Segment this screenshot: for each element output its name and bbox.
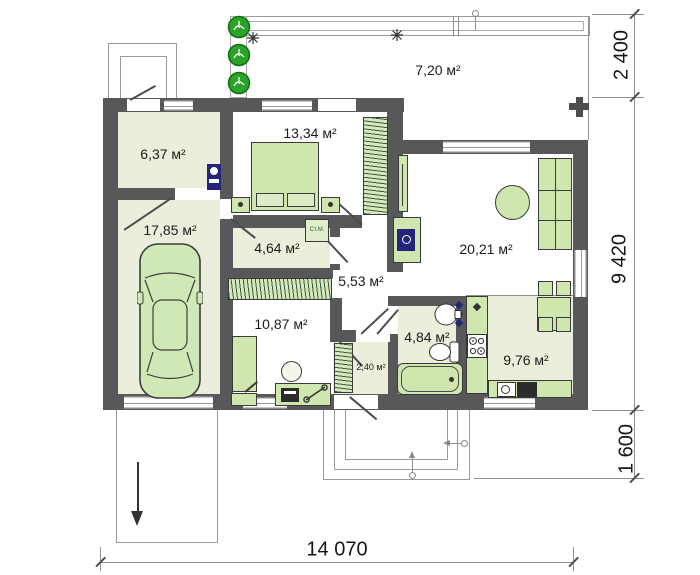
arrow-left-icon — [443, 440, 450, 446]
window — [262, 100, 312, 111]
pillow — [287, 193, 315, 207]
wall-segment — [228, 268, 333, 278]
coat-hook-icon — [303, 383, 329, 403]
room-label-garage: 17,85 м² — [143, 222, 196, 238]
door-opening — [318, 99, 356, 111]
room-label-kitchen: 9,76 м² — [503, 352, 548, 368]
dining-chair — [556, 317, 571, 332]
dim-porch-depth: 1 600 — [616, 424, 639, 474]
room-label-bathroom: 4,84 м² — [404, 329, 449, 345]
kitchen-sink-basin — [501, 385, 510, 394]
dim-extension — [592, 410, 644, 411]
wardrobe — [228, 278, 332, 300]
tree-icon — [227, 43, 251, 67]
room-label-closet: 2,40 м² — [356, 362, 385, 372]
driveway-arrow-line — [137, 462, 139, 512]
wall-segment — [117, 188, 175, 200]
level-marker-line — [412, 458, 413, 472]
arrow-up-icon — [409, 451, 415, 458]
back-porch-inner — [120, 56, 167, 100]
boiler-slot — [209, 179, 219, 183]
dim-extension — [474, 478, 644, 479]
dim-extension — [592, 14, 644, 15]
room-label-corridor: 4,64 м² — [254, 240, 299, 256]
window — [484, 397, 535, 409]
bathtub-drain-icon — [449, 377, 454, 382]
sofa-line — [555, 158, 556, 250]
bench-low — [231, 393, 257, 406]
level-marker-icon — [409, 472, 416, 479]
tree-icon — [227, 71, 251, 95]
pillow — [256, 193, 284, 207]
window — [574, 250, 587, 297]
room-label-hall: 5,53 м² — [338, 273, 383, 289]
wall-segment — [103, 98, 118, 410]
dim-house-depth: 9 420 — [609, 234, 632, 284]
floor-plan: Ст.М. — [0, 0, 700, 575]
room-label-hallway: 10,87 м² — [254, 316, 307, 332]
sofa-line — [538, 220, 572, 221]
dining-chair — [556, 281, 571, 296]
window — [443, 141, 530, 153]
sofa-line — [538, 190, 572, 191]
level-marker-icon — [472, 10, 479, 17]
survey-marker-icon — [247, 32, 259, 44]
dining-chair — [538, 317, 553, 332]
stove-icon — [467, 334, 487, 358]
pergola-inner — [236, 21, 584, 31]
boiler-dial-icon — [210, 167, 218, 175]
lamp-icon — [238, 202, 243, 207]
level-marker-icon — [461, 440, 468, 447]
level-marker-line — [475, 17, 476, 31]
wardrobe — [334, 343, 353, 393]
wardrobe — [363, 117, 388, 215]
dim-extension — [592, 97, 644, 98]
terrace-right-edge — [588, 16, 589, 140]
dim-house-width: 14 070 — [306, 539, 367, 562]
driveway-arrow-icon — [131, 511, 143, 526]
window — [164, 100, 193, 111]
pergola-divider — [453, 16, 454, 36]
tv-panel — [398, 155, 408, 212]
wall-segment — [228, 215, 362, 228]
shoe-cabinet-slot — [284, 391, 296, 394]
survey-marker-icon — [391, 29, 403, 41]
tv-line — [402, 164, 403, 206]
round-table — [495, 185, 530, 220]
lamp-icon — [328, 202, 333, 207]
car — [137, 242, 203, 400]
room-label-terrace: 7,20 м² — [415, 62, 460, 78]
dim-terrace-depth: 2 400 — [611, 30, 634, 80]
door-opening — [362, 215, 387, 228]
room-label-bedroom: 13,34 м² — [283, 125, 336, 141]
dim-line-bottom — [100, 562, 574, 563]
dining-chair — [538, 281, 553, 296]
room-label-entry: 6,37 м² — [140, 146, 185, 162]
room-label-living: 20,21 м² — [459, 241, 512, 257]
pergola-divider — [458, 16, 459, 36]
door-opening — [127, 99, 160, 111]
fireplace-door-icon — [402, 235, 411, 244]
stool — [281, 361, 302, 382]
sink-icon — [434, 302, 462, 327]
washing-machine-label: Ст.М. — [310, 227, 325, 233]
oven — [517, 382, 537, 397]
chimney-icon — [569, 103, 589, 110]
